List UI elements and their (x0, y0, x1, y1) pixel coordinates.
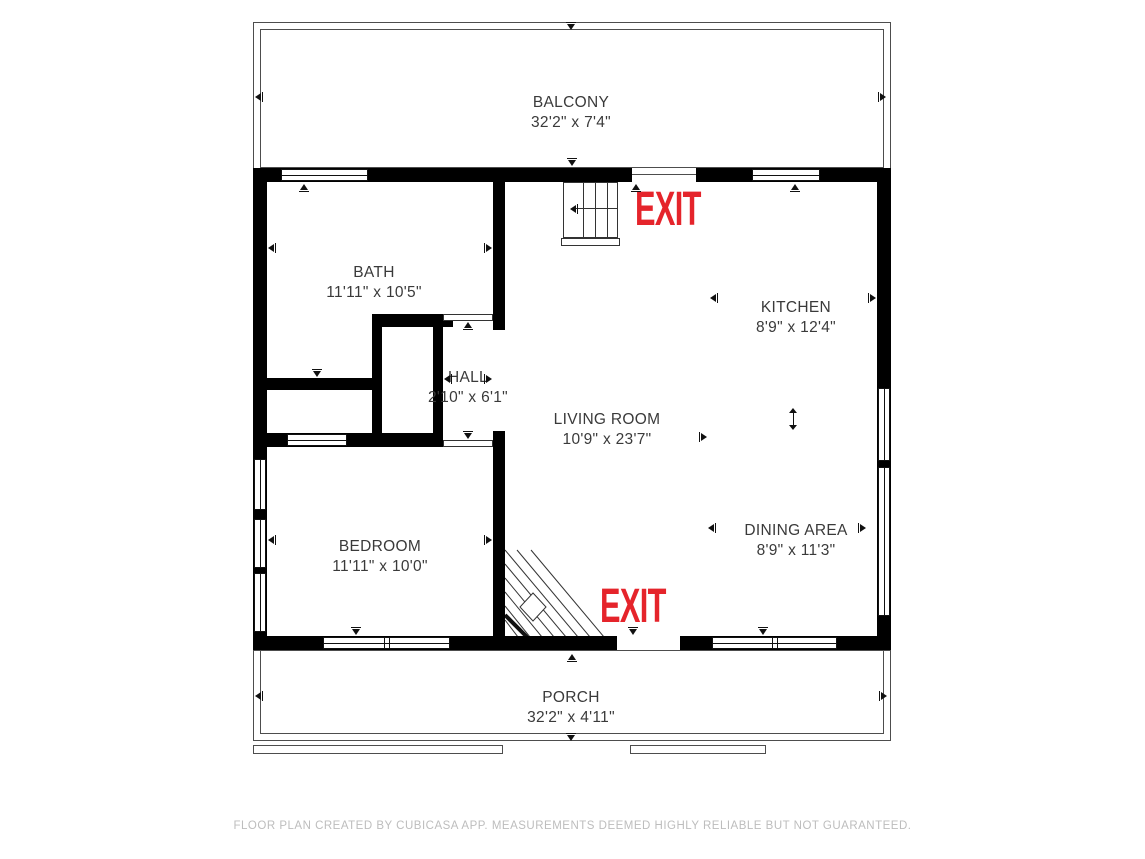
arrow-marker (567, 735, 575, 741)
arrow-marker (568, 654, 576, 660)
wall-bath-bottom (253, 378, 372, 390)
room-label-balcony: BALCONY 32'2" x 7'4" (531, 93, 611, 132)
porch-step-edge-right (630, 745, 766, 754)
window-interior (287, 434, 347, 446)
stair-tread (595, 183, 596, 238)
room-name: HALL (428, 368, 508, 388)
stair-direction-line (576, 208, 618, 209)
arrow-marker (568, 160, 576, 166)
room-label-living-room: LIVING ROOM 10'9" x 23'7" (554, 410, 661, 449)
stair-tread (607, 183, 608, 238)
arrow-marker (567, 24, 575, 30)
arrow-marker (486, 375, 492, 383)
room-name: LIVING ROOM (554, 410, 661, 430)
arrow-marker (708, 524, 714, 532)
arrow-marker (313, 371, 321, 377)
door-jamb-hall-bottom (443, 440, 493, 447)
room-dims: 32'2" x 7'4" (531, 113, 611, 133)
stair-landing (561, 238, 620, 246)
wall-bath-right (493, 182, 505, 330)
room-label-bath: BATH 11'11" x 10'5" (326, 263, 422, 302)
window (878, 467, 890, 616)
arrow-marker (300, 184, 308, 190)
window (712, 637, 837, 649)
door-jamb-hall-top (443, 314, 493, 321)
arrow-marker (870, 294, 876, 302)
floor-plan: BALCONY 32'2" x 7'4" BATH 11'11" x 10'5"… (0, 0, 1145, 859)
window (254, 459, 266, 510)
arrow-marker (486, 244, 492, 252)
arrow-marker (880, 93, 886, 101)
arrow-marker (701, 433, 707, 441)
room-label-porch: PORCH 32'2" x 4'11" (527, 688, 615, 727)
stair-tread (583, 183, 584, 238)
room-dims: 11'11" x 10'0" (332, 557, 428, 577)
arrow-marker (464, 433, 472, 439)
room-name: DINING AREA (744, 521, 847, 541)
room-name: BEDROOM (332, 537, 428, 557)
room-dims: 32'2" x 4'11" (527, 708, 615, 728)
wall-closet-left (372, 314, 382, 447)
wall-hall-stub (493, 314, 505, 328)
room-dims: 8'9" x 11'3" (744, 541, 847, 561)
footer-disclaimer: FLOOR PLAN CREATED BY CUBICASA APP. MEAS… (0, 820, 1145, 832)
room-dims: 2'10" x 6'1" (428, 388, 508, 408)
stair-direction-arrow (570, 205, 576, 213)
arrow-marker (268, 244, 274, 252)
arrow-marker (860, 524, 866, 532)
arrow-marker (444, 375, 450, 383)
wall-living-left (493, 431, 505, 650)
arrow-marker (629, 629, 637, 635)
arrow-marker (632, 184, 640, 190)
room-label-hall: HALL 2'10" x 6'1" (428, 368, 508, 407)
wall-bedroom-top (253, 433, 443, 447)
porch-step-edge-left (253, 745, 503, 754)
arrow-marker (352, 629, 360, 635)
exit-label-top: EXIT (635, 187, 701, 233)
room-label-kitchen: KITCHEN 8'9" x 12'4" (756, 298, 836, 337)
window (878, 388, 890, 461)
room-label-bedroom: BEDROOM 11'11" x 10'0" (332, 537, 428, 576)
room-label-dining-area: DINING AREA 8'9" x 11'3" (744, 521, 847, 560)
window (752, 169, 820, 181)
arrow-marker (464, 322, 472, 328)
arrow-marker (255, 692, 261, 700)
arrow-marker-vertical (793, 413, 794, 425)
window (323, 637, 450, 649)
exit-label-bottom: EXIT (600, 584, 666, 630)
room-name: KITCHEN (756, 298, 836, 318)
arrow-marker (881, 692, 887, 700)
arrow-marker (791, 184, 799, 190)
room-dims: 10'9" x 23'7" (554, 430, 661, 450)
room-dims: 8'9" x 12'4" (756, 318, 836, 338)
room-name: BATH (326, 263, 422, 283)
arrow-marker (710, 294, 716, 302)
arrow-marker (486, 536, 492, 544)
arrow-marker (255, 93, 261, 101)
room-dims: 11'11" x 10'5" (326, 283, 422, 303)
room-name: PORCH (527, 688, 615, 708)
arrow-marker (759, 629, 767, 635)
window (254, 573, 266, 632)
arrow-marker (268, 536, 274, 544)
room-name: BALCONY (531, 93, 611, 113)
window (254, 519, 266, 568)
window (281, 169, 368, 181)
